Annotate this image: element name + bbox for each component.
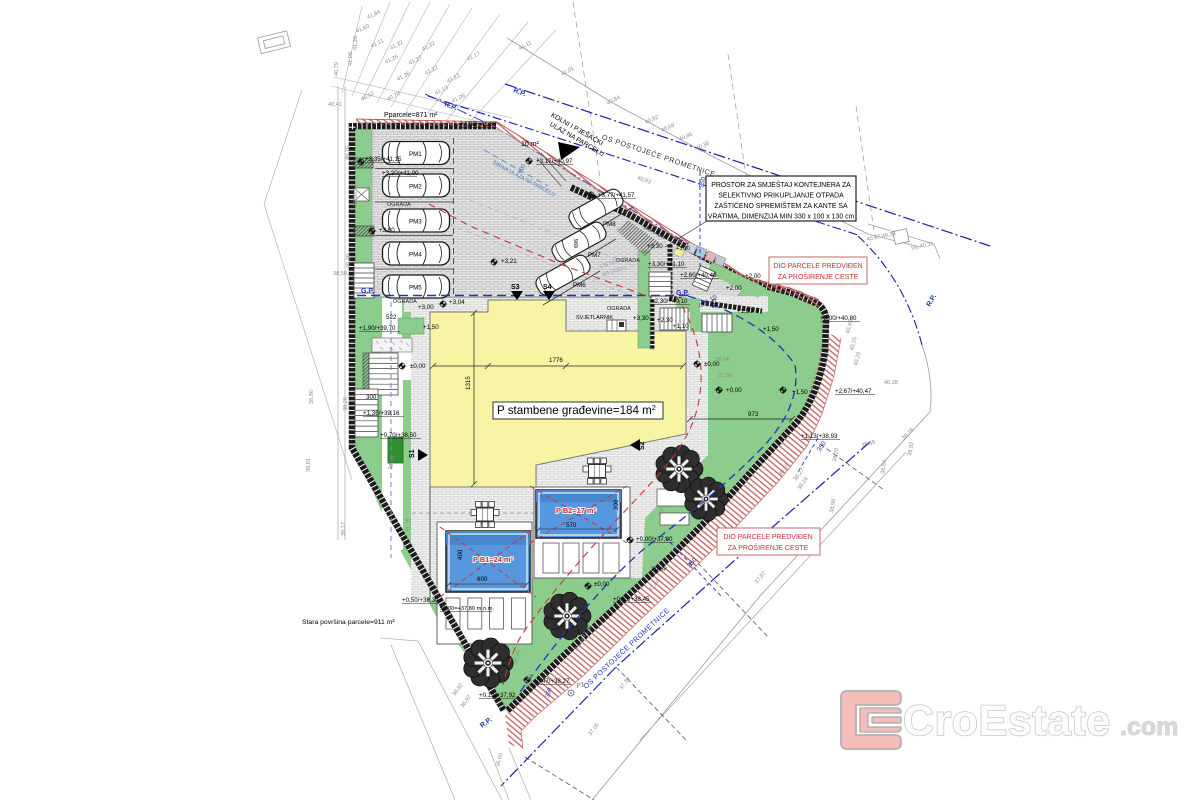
svg-text:+3,17/+40,97: +3,17/+40,97 <box>536 158 573 165</box>
svg-text:+0,50/+38,30: +0,50/+38,30 <box>402 597 439 604</box>
svg-text:ZA PROŠIRENJE CESTE: ZA PROŠIRENJE CESTE <box>778 272 859 281</box>
svg-text:PM2: PM2 <box>409 184 422 191</box>
svg-text:38,81: 38,81 <box>306 458 312 472</box>
svg-text:OGRADA: OGRADA <box>607 306 631 312</box>
svg-text:+0,00: +0,00 <box>726 387 742 394</box>
svg-text:+3,35/+41,15: +3,35/+41,15 <box>365 156 402 163</box>
svg-text:522: 522 <box>386 314 397 321</box>
svg-text:40,79: 40,79 <box>334 62 340 76</box>
svg-text:37: 37 <box>405 527 411 533</box>
svg-text:41,08: 41,08 <box>348 52 354 66</box>
svg-text:1776: 1776 <box>549 357 563 364</box>
svg-text:OGRADA: OGRADA <box>387 202 411 208</box>
svg-text:+2,30: +2,30 <box>657 317 673 324</box>
svg-text:40,20: 40,20 <box>346 254 352 268</box>
svg-text:G.P.: G.P. <box>361 288 374 295</box>
svg-text:PM1: PM1 <box>409 151 422 158</box>
svg-text:+3,30: +3,30 <box>647 243 663 250</box>
svg-text:570: 570 <box>566 522 577 529</box>
svg-text:±0,00: ±0,00 <box>594 581 610 588</box>
svg-text:PM7: PM7 <box>588 252 601 259</box>
svg-text:+4,00/+41,80: +4,00/+41,80 <box>460 121 497 128</box>
svg-text:37,96: 37,96 <box>718 373 732 379</box>
svg-text:+1,10: +1,10 <box>673 323 689 330</box>
svg-text:Pparcele=871 m²: Pparcele=871 m² <box>384 112 438 119</box>
svg-text:P stambene građevine=184 m2: P stambene građevine=184 m2 <box>497 403 656 417</box>
svg-text:38,86: 38,86 <box>309 390 315 404</box>
svg-text:+0,12/+37,92: +0,12/+37,92 <box>479 692 516 699</box>
svg-text:+3,30: +3,30 <box>676 246 690 252</box>
svg-text:+3,00: +3,00 <box>418 304 434 311</box>
svg-text:DIO PARCELE PREDVIĐEN: DIO PARCELE PREDVIĐEN <box>773 263 862 270</box>
svg-text:+2,60/+40,40: +2,60/+40,40 <box>680 272 717 279</box>
svg-text:400: 400 <box>457 549 464 560</box>
svg-text:S1: S1 <box>409 449 416 458</box>
svg-text:±0,00=+37,80 m n.m.: ±0,00=+37,80 m n.m. <box>440 606 494 612</box>
svg-text:300: 300 <box>613 499 620 510</box>
svg-text:+3,30/+41,10: +3,30/+41,10 <box>648 261 685 268</box>
svg-text:PM4: PM4 <box>409 252 422 259</box>
svg-text:PM8: PM8 <box>603 221 616 228</box>
svg-text:PROSTOR ZA SMJEŠTAJ KONTEJNERA: PROSTOR ZA SMJEŠTAJ KONTEJNERA ZA <box>711 180 851 189</box>
svg-text:PM6: PM6 <box>573 282 586 289</box>
svg-text:+0,47/+38,27: +0,47/+38,27 <box>533 678 570 685</box>
svg-text:S3: S3 <box>511 284 520 291</box>
svg-text:40,41: 40,41 <box>328 102 342 108</box>
svg-text:+1,50: +1,50 <box>763 326 779 333</box>
svg-text:+3,04: +3,04 <box>449 299 465 306</box>
svg-text:+1,50: +1,50 <box>792 389 808 396</box>
svg-text:38,04: 38,04 <box>715 357 729 363</box>
svg-text:38,50: 38,50 <box>333 271 347 277</box>
svg-text:+0,00/+37,80: +0,00/+37,80 <box>636 536 673 543</box>
svg-text:S4: S4 <box>543 284 552 291</box>
svg-text:300: 300 <box>366 394 377 401</box>
svg-text:10 m²: 10 m² <box>521 141 540 148</box>
svg-text:P B1=24 m²: P B1=24 m² <box>473 555 513 564</box>
svg-text:+1,13/+38,93: +1,13/+38,93 <box>801 433 838 440</box>
svg-text:+1,90/+39,70: +1,90/+39,70 <box>359 325 396 332</box>
svg-text:OGRADA: OGRADA <box>393 299 417 305</box>
svg-text:40,28: 40,28 <box>884 380 898 386</box>
svg-text:PM3: PM3 <box>409 219 422 226</box>
svg-text:G.P.: G.P. <box>676 290 689 297</box>
svg-text:+0,70/+38,50: +0,70/+38,50 <box>380 432 417 439</box>
svg-text:DIO PARCELE PREDVIĐEN: DIO PARCELE PREDVIĐEN <box>723 534 812 541</box>
svg-text:+3,21: +3,21 <box>501 258 517 265</box>
svg-text:+2,67/+40,47: +2,67/+40,47 <box>835 388 872 395</box>
svg-text:CroEstate: CroEstate <box>903 697 1111 745</box>
svg-text:1315: 1315 <box>465 376 472 390</box>
svg-text:+3,77/+41,57: +3,77/+41,57 <box>598 192 635 199</box>
svg-text:30 m²: 30 m² <box>651 566 667 573</box>
svg-text:39,93: 39,93 <box>353 192 359 206</box>
svg-text:+1,50: +1,50 <box>737 308 753 315</box>
svg-text:SVJETLARNIK: SVJETLARNIK <box>576 315 613 321</box>
svg-text:SELEKTIVNO PRIKUPLJANJE OTPADA: SELEKTIVNO PRIKUPLJANJE OTPADA <box>718 193 844 200</box>
svg-text:VRATIMA, DIMENZIJA MIN 330 x 1: VRATIMA, DIMENZIJA MIN 330 x 100 x 130 c… <box>708 214 855 221</box>
svg-text:38,26: 38,26 <box>343 397 349 411</box>
svg-text:+1,36/+39,16: +1,36/+39,16 <box>363 410 400 417</box>
svg-text:973: 973 <box>748 411 759 418</box>
svg-text:PM5: PM5 <box>409 285 422 292</box>
svg-text:P B2=17 m²: P B2=17 m² <box>556 506 596 515</box>
svg-text:Stara površina parcele=911 m²: Stara površina parcele=911 m² <box>302 619 395 626</box>
svg-text:41,28: 41,28 <box>353 36 359 50</box>
svg-text:+1,50: +1,50 <box>423 324 439 331</box>
svg-text:+3,00: +3,00 <box>379 227 395 234</box>
svg-text:40,16: 40,16 <box>345 146 351 160</box>
svg-text:+2,00: +2,00 <box>745 273 761 280</box>
svg-text:696: 696 <box>574 239 580 248</box>
svg-text:+3,20/+41,00: +3,20/+41,00 <box>382 170 419 177</box>
svg-text:+3,30: +3,30 <box>633 315 649 322</box>
svg-text:37: 37 <box>405 519 411 525</box>
svg-text:38,17: 38,17 <box>341 522 347 536</box>
svg-text:±0,00: ±0,00 <box>410 363 426 370</box>
svg-text:ZA PROŠIRENJE CESTE: ZA PROŠIRENJE CESTE <box>728 543 809 552</box>
svg-text:600: 600 <box>477 576 488 583</box>
svg-text:ZAŠTIĆENO SPREMIŠTEM ZA KANTE: ZAŠTIĆENO SPREMIŠTEM ZA KANTE SA <box>714 201 848 210</box>
svg-text:+0,65/+38,45: +0,65/+38,45 <box>613 596 650 603</box>
svg-text:513: 513 <box>712 299 718 308</box>
svg-text:.com: .com <box>1120 713 1178 741</box>
svg-text:+2,00: +2,00 <box>726 285 742 292</box>
svg-text:+2,30/+40,10: +2,30/+40,10 <box>651 298 688 305</box>
svg-text:S2: S2 <box>639 441 646 450</box>
